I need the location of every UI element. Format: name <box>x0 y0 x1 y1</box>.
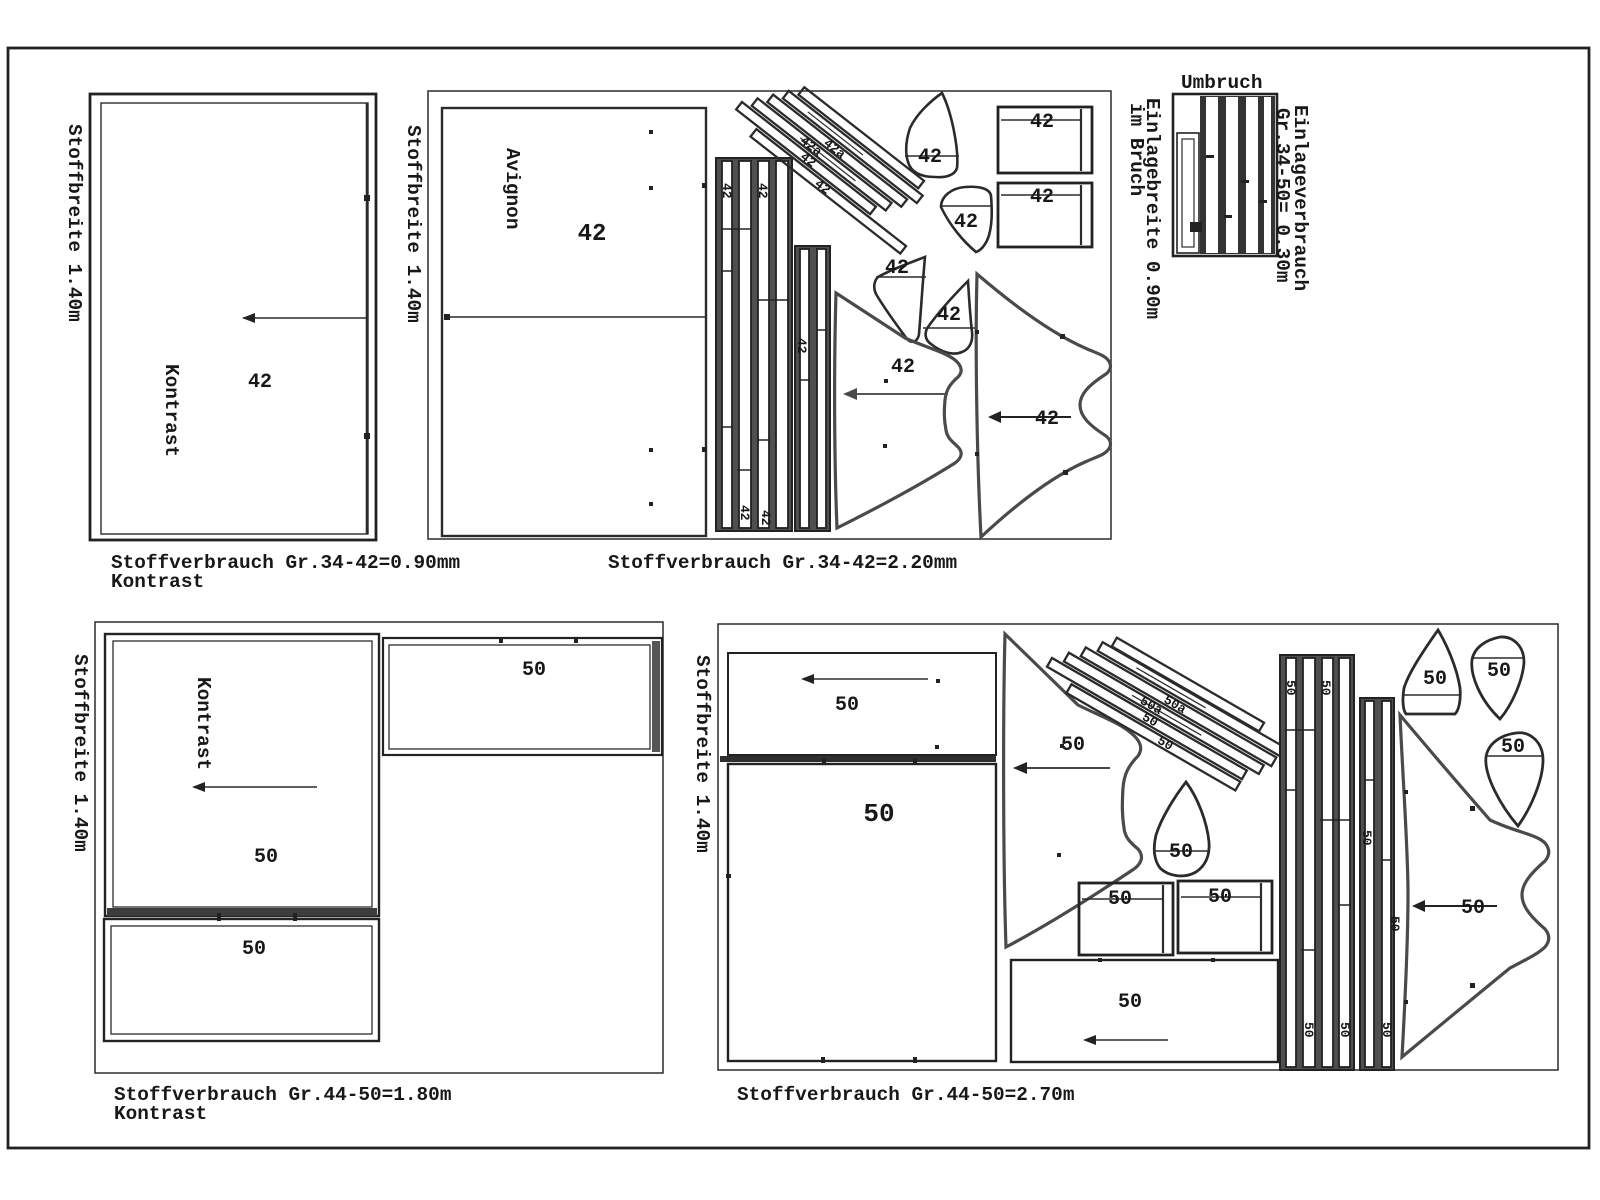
svg-text:50: 50 <box>1169 841 1193 864</box>
svg-text:Stoffverbrauch Gr.34-42=2.20mm: Stoffverbrauch Gr.34-42=2.20mm <box>608 552 957 574</box>
svg-text:42: 42 <box>794 338 809 354</box>
svg-text:Kontrast: Kontrast <box>111 571 204 593</box>
svg-text:50: 50 <box>1501 736 1525 759</box>
svg-text:Kontrast: Kontrast <box>114 1103 207 1125</box>
svg-text:42: 42 <box>248 371 272 394</box>
svg-text:50: 50 <box>1061 734 1085 757</box>
svg-text:42: 42 <box>1030 111 1054 134</box>
svg-text:50: 50 <box>1487 660 1511 683</box>
svg-text:Kontrast: Kontrast <box>160 364 182 457</box>
svg-text:50: 50 <box>1318 680 1333 696</box>
svg-text:50: 50 <box>1379 1022 1394 1038</box>
svg-text:50: 50 <box>1387 916 1402 932</box>
svg-text:42: 42 <box>1030 186 1054 209</box>
svg-text:Kontrast: Kontrast <box>192 677 214 770</box>
svg-text:Stoffbreite 1.40m: Stoffbreite 1.40m <box>69 654 91 852</box>
svg-text:50: 50 <box>1423 668 1447 691</box>
svg-text:42: 42 <box>891 356 915 379</box>
svg-text:42: 42 <box>1035 408 1059 431</box>
svg-text:50: 50 <box>1155 733 1176 754</box>
svg-text:50: 50 <box>522 659 546 682</box>
svg-text:50: 50 <box>1337 1022 1352 1038</box>
svg-text:Stoffbreite 1.40m: Stoffbreite 1.40m <box>63 124 85 322</box>
svg-text:Stoffbreite 1.40m: Stoffbreite 1.40m <box>691 655 713 853</box>
svg-text:Umbruch: Umbruch <box>1181 72 1262 94</box>
svg-text:50: 50 <box>1208 886 1232 909</box>
svg-text:50: 50 <box>835 694 859 717</box>
svg-text:42: 42 <box>918 146 942 169</box>
svg-text:50: 50 <box>1301 1022 1316 1038</box>
svg-text:50: 50 <box>863 799 894 829</box>
svg-text:50: 50 <box>242 938 266 961</box>
svg-text:42: 42 <box>885 257 909 280</box>
svg-text:50: 50 <box>1108 888 1132 911</box>
svg-text:42: 42 <box>758 510 773 526</box>
svg-text:42: 42 <box>737 505 752 521</box>
svg-text:50: 50 <box>1283 680 1298 696</box>
svg-text:Gr.34-50= 0.30m: Gr.34-50= 0.30m <box>1271 108 1293 283</box>
svg-text:42: 42 <box>578 221 607 248</box>
svg-text:42: 42 <box>719 183 734 199</box>
svg-text:im Bruch: im Bruch <box>1125 103 1147 196</box>
svg-text:42: 42 <box>954 211 978 234</box>
svg-text:Stoffverbrauch Gr.44-50=2.70m: Stoffverbrauch Gr.44-50=2.70m <box>737 1084 1074 1106</box>
svg-text:50: 50 <box>254 846 278 869</box>
svg-text:Stoffbreite 1.40m: Stoffbreite 1.40m <box>402 125 424 323</box>
svg-text:50: 50 <box>1118 991 1142 1014</box>
svg-text:42: 42 <box>755 183 770 199</box>
svg-text:50: 50 <box>1359 830 1374 846</box>
svg-text:50: 50 <box>1461 897 1485 920</box>
svg-text:42: 42 <box>937 304 961 327</box>
svg-text:Avignon: Avignon <box>501 148 523 229</box>
svg-text:42: 42 <box>812 176 834 198</box>
